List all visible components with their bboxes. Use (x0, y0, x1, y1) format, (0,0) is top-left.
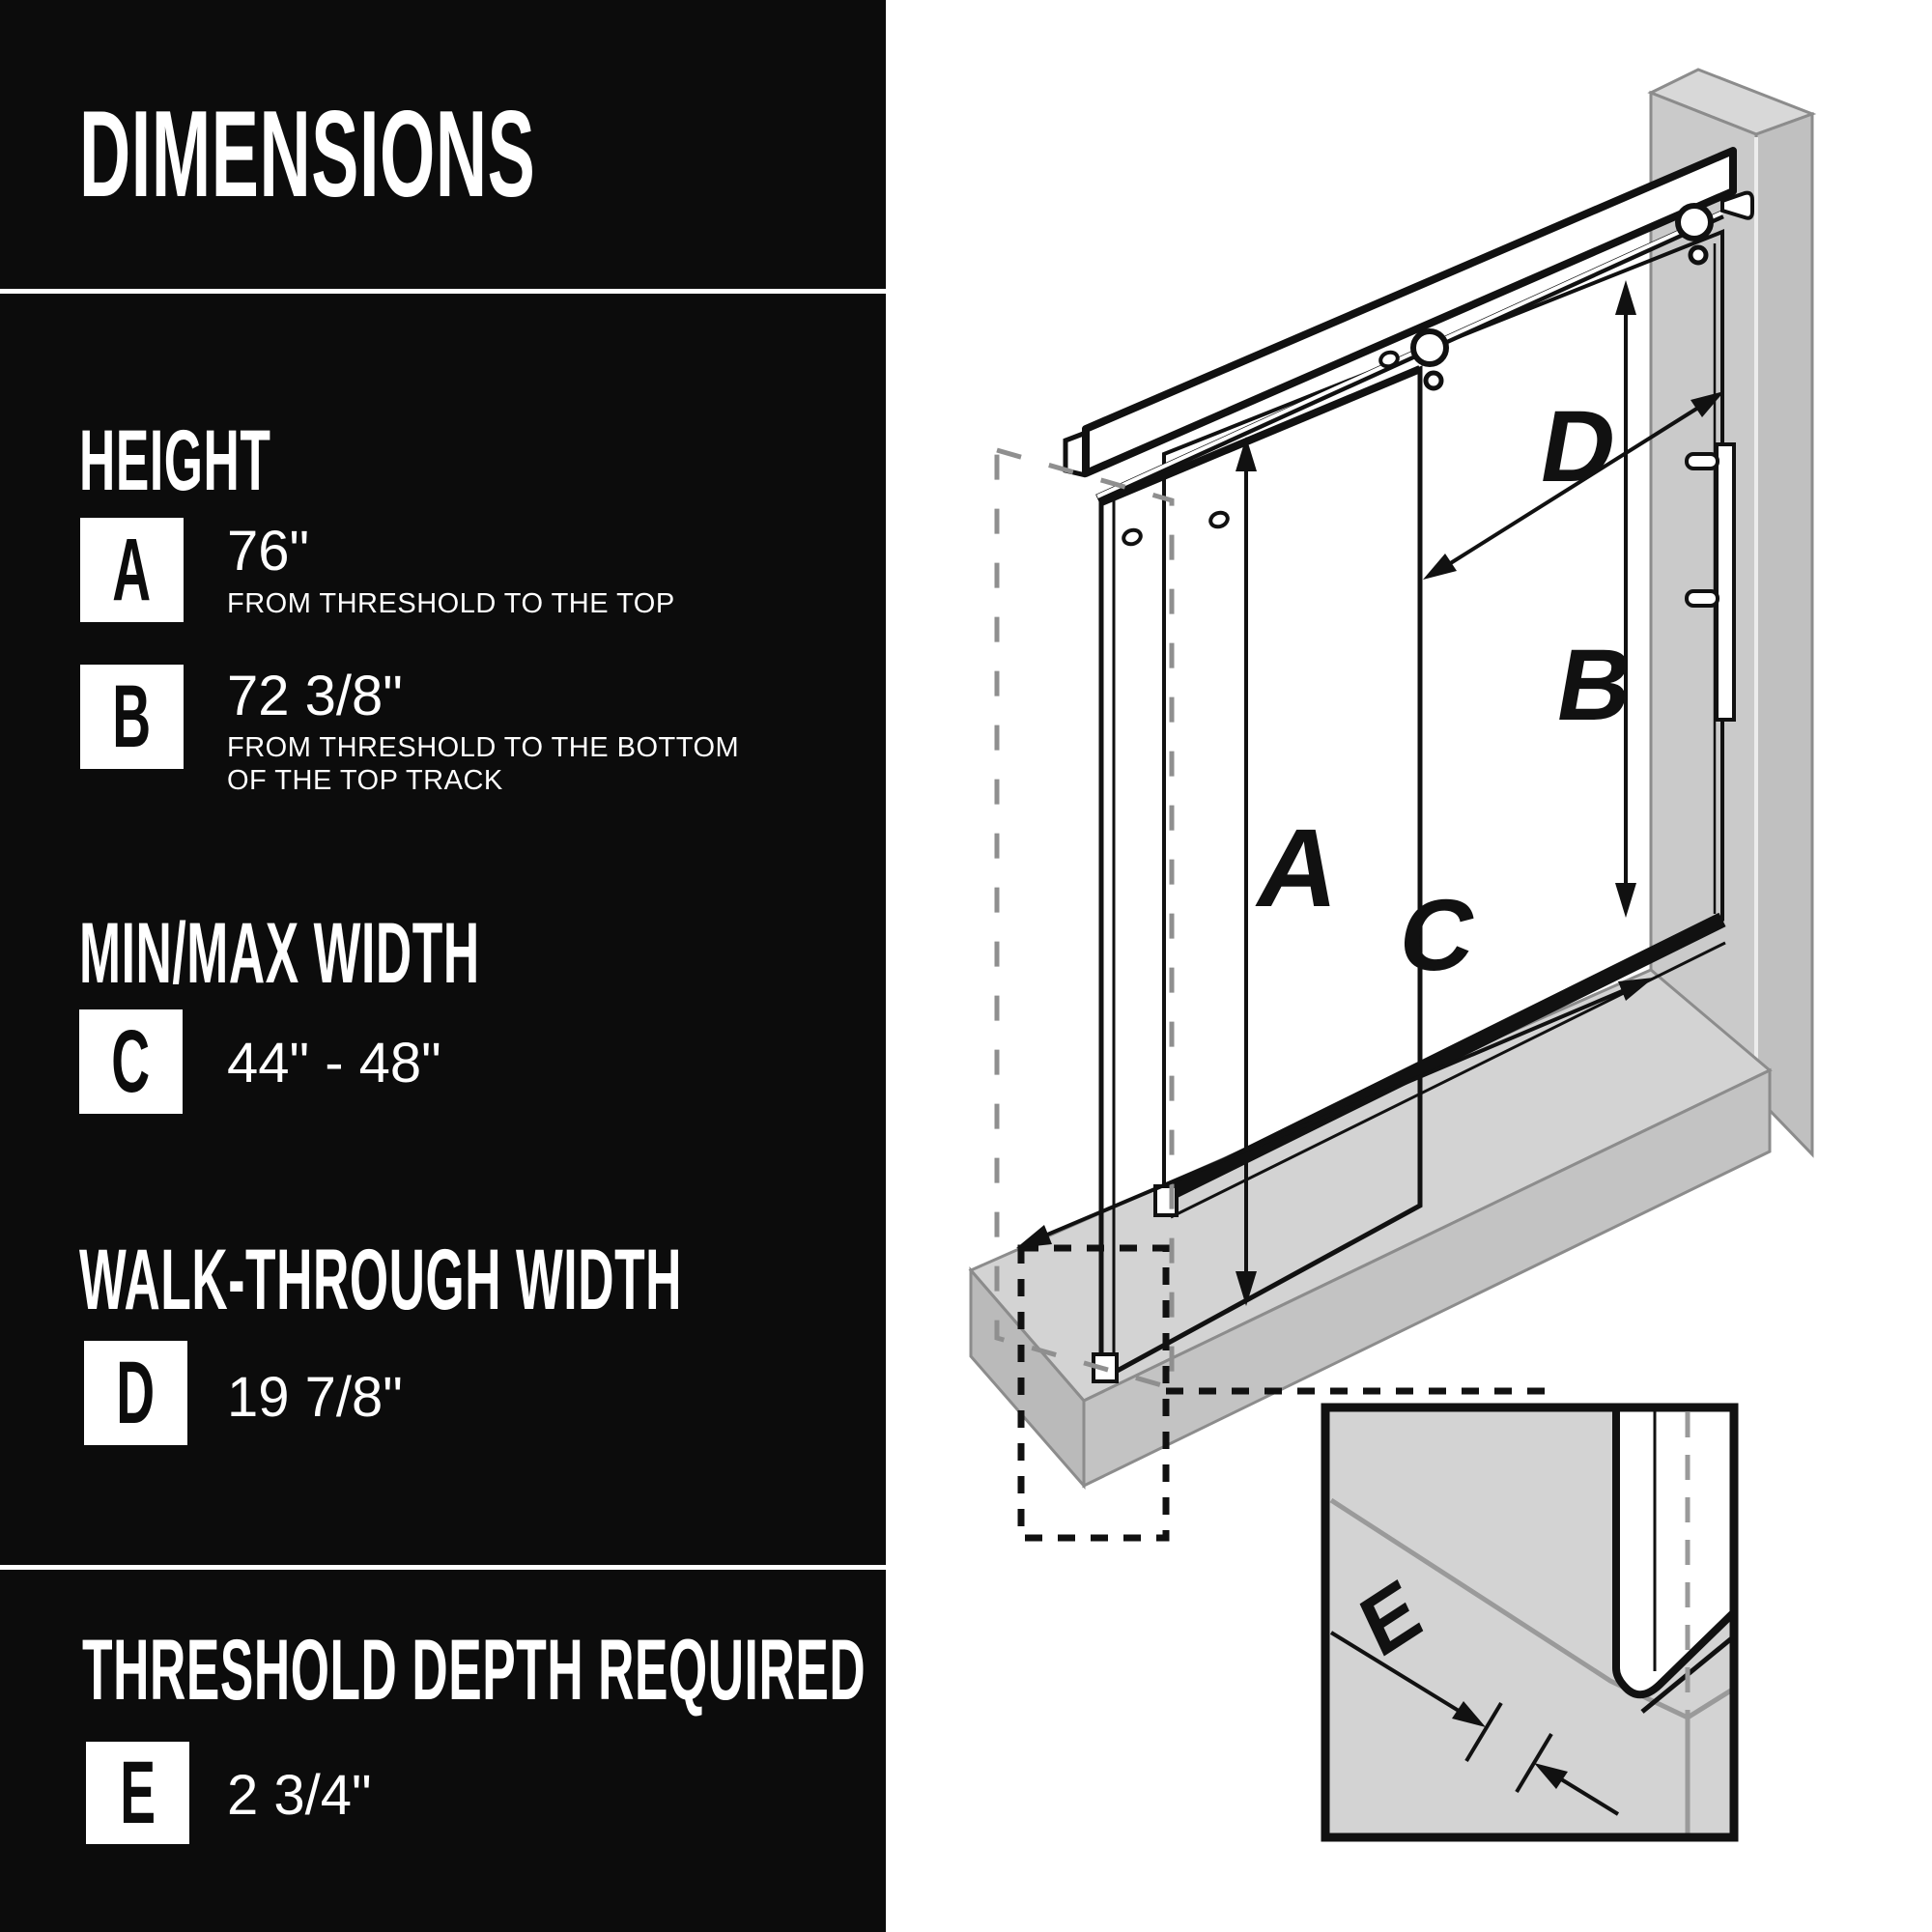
diagram-label-b: B (1548, 629, 1641, 742)
seal-bolt-top (1687, 454, 1718, 469)
dim-b-arrow-up (1615, 280, 1636, 315)
dim-d-arrow-left (1423, 554, 1457, 580)
shower-door-technical-drawing: A B C D E (0, 0, 1932, 1932)
dim-c-arrow-left (1016, 1225, 1052, 1248)
roller-right (1678, 206, 1711, 239)
roller-rod-fill (1097, 213, 1722, 497)
roller-left-bolt (1426, 373, 1441, 388)
diagram-label-c: C (1391, 879, 1484, 992)
roller-right-bolt (1690, 247, 1706, 263)
seal-bolt-bottom (1687, 591, 1718, 606)
diagram-label-d: D (1532, 390, 1625, 503)
roller-left (1413, 331, 1446, 364)
track-bar (1086, 151, 1733, 473)
dim-b-arrow-down (1615, 883, 1636, 918)
seal-strip (1717, 444, 1734, 720)
threshold-detail-inset: E (1325, 1407, 1734, 1837)
wall-side-face (1756, 114, 1812, 1154)
glass-hole-2 (1208, 510, 1230, 528)
diagram-label-a: A (1248, 806, 1350, 930)
glass-hole-1 (1122, 527, 1143, 546)
top-track-assembly (1065, 151, 1752, 498)
